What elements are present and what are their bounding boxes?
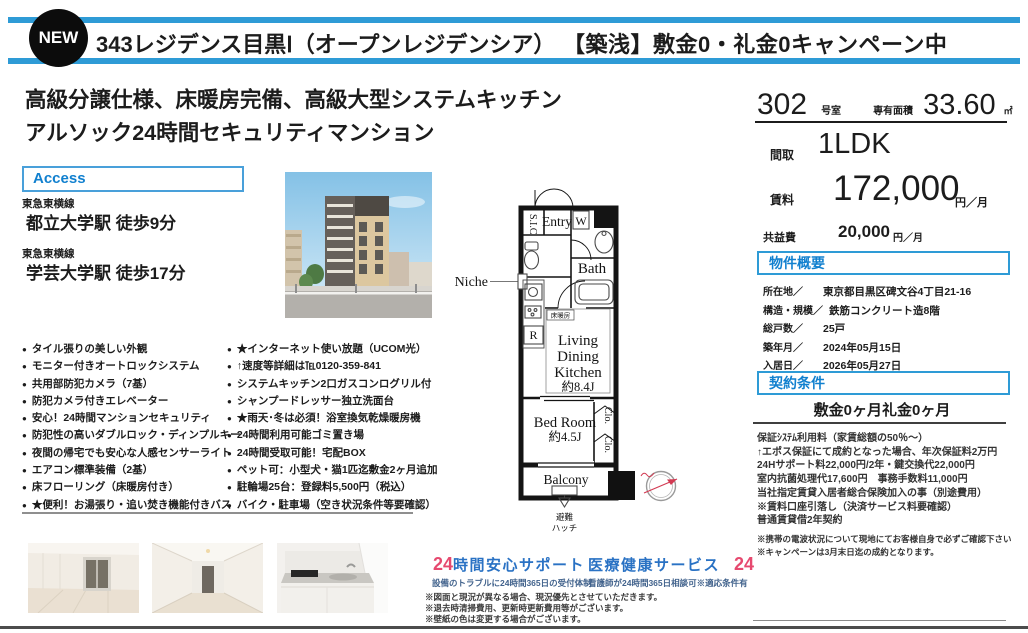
ldk-label-3: Kitchen — [554, 365, 602, 381]
bullet-icon: ● — [22, 445, 27, 462]
list-item: ●システムキッチン2口ガスコンログリル付 — [227, 376, 438, 393]
room-photo-graphic — [152, 543, 263, 613]
deposit-terms: 敷金0ヶ月礼金0ヶ月 — [757, 399, 1007, 420]
floorplan-ps-shaft — [608, 471, 635, 500]
feature-text: タイル張りの美しい外観 — [32, 341, 148, 358]
property-flyer: NEW 343レジデンス目黒Ⅰ（オープンレジデンシア） 【築浅】敷金0・礼金0キ… — [0, 0, 1028, 633]
left-divider-line — [22, 512, 413, 514]
common-fee-unit: 円／月 — [893, 229, 923, 244]
contract-rule — [753, 422, 1006, 424]
list-item: ●防犯性の高いダブルロック・ディンプルキー — [22, 427, 241, 444]
feature-text: 床フローリング（床暖房付き） — [32, 479, 179, 496]
niche-label: Niche — [455, 275, 488, 290]
bullet-icon: ● — [22, 462, 27, 479]
ldk-label-1: Living — [558, 333, 598, 349]
overview-label: 所在地／ — [763, 283, 817, 298]
catch-copy: 高級分譲仕様、床暖房完備、高級大型システムキッチン アルソック24時間セキュリテ… — [25, 84, 562, 150]
overview-label: 築年月／ — [763, 339, 817, 354]
list-item: ●シャンプードレッサー独立洗面台 — [227, 393, 438, 410]
overview-heading: 物件概要 — [757, 251, 1010, 275]
medical-24-number: 24 — [734, 554, 754, 574]
area-unit: ㎡ — [1004, 104, 1013, 117]
contract-note-line: 当社指定賃貸入居者総合保険加入の事（別途費用） — [757, 487, 997, 501]
list-item: ●床フローリング（床暖房付き） — [22, 479, 241, 496]
right-divider-line — [753, 620, 1006, 621]
list-item: ●モニター付きオートロックシステム — [22, 358, 241, 375]
hatch-label-1: 避難 — [556, 512, 574, 522]
footnote-line: ※退去時清掃費用、更新時更新費用等がございます。 — [425, 603, 662, 614]
contract-notes-extra: ※携帯の電波状況について現地にてお客様自身で必ずご確認下さい ※キャンペーンは3… — [757, 533, 1012, 559]
unit-summary-row: 302 号室 専有面積 33.60 ㎡ — [757, 88, 1009, 122]
catch-copy-line1: 高級分譲仕様、床暖房完備、高級大型システムキッチン — [25, 84, 562, 117]
catch-copy-line2: アルソック24時間セキュリティマンション — [25, 117, 562, 150]
footnotes: ※図面と現況が異なる場合、現況優先とさせていただきます。 ※退去時清掃費用、更新… — [425, 592, 662, 624]
refrigerator-label: R — [529, 328, 537, 342]
feature-text: ペット可：小型犬・猫1匹迄敷金2ヶ月追加 — [237, 462, 438, 479]
overview-value: 東京都目黒区碑文谷4丁目21-16 — [823, 284, 971, 299]
closet-label-2: Clo. — [602, 436, 613, 453]
overview-row: 築年月／2024年05月15日 — [763, 339, 1010, 355]
room-number: 302 — [757, 88, 807, 122]
overview-value: 鉄筋コンクリート造8階 — [829, 303, 940, 318]
layout-label: 間取 — [770, 146, 794, 163]
hatch-label-2: ハッチ — [552, 523, 578, 533]
bullet-icon: ● — [227, 462, 232, 479]
rent-value: 172,000 — [833, 169, 960, 209]
floorplan-corner-shaft — [594, 208, 616, 228]
feature-text: ★インターネット使い放題（UCOM光） — [237, 341, 427, 358]
bath-label: Bath — [578, 261, 607, 277]
compass-icon — [641, 472, 677, 501]
entry-label: Entry — [542, 214, 572, 229]
contract-heading: 契約条件 — [757, 371, 1010, 395]
rent-label: 賃料 — [770, 191, 794, 208]
feature-text: モニター付きオートロックシステム — [32, 358, 200, 375]
overview-row: 構造・規模／鉄筋コンクリート造8階 — [763, 302, 1010, 318]
bullet-icon: ● — [22, 376, 27, 393]
bottom-rule — [0, 626, 1028, 629]
list-item: ●ペット可：小型犬・猫1匹迄敷金2ヶ月追加 — [227, 462, 438, 479]
feature-text: 防犯カメラ付きエレベーター — [32, 393, 169, 410]
building-photo-graphic — [285, 172, 432, 318]
support-service-title: 24時間安心サポート — [433, 554, 585, 575]
overview-label: 構造・規模／ — [763, 302, 823, 317]
list-item: ●24時間利用可能ゴミ置き場 — [227, 427, 438, 444]
bullet-icon: ● — [22, 358, 27, 375]
contract-note-line: ※キャンペーンは3月末日迄の成約となります。 — [757, 546, 1012, 559]
layout-value: 1LDK — [818, 128, 891, 161]
list-item: ●★雨天･冬は必須！浴室換気乾燥暖房機 — [227, 410, 438, 427]
feature-text: 防犯性の高いダブルロック・ディンプルキー — [32, 427, 241, 444]
overview-label: 総戸数／ — [763, 320, 817, 335]
footnote-line: ※壁紙の色は変更する場合がございます。 — [425, 614, 662, 625]
list-item: ●24時間受取可能！宅配BOX — [227, 445, 438, 462]
bullet-icon: ● — [22, 393, 27, 410]
station-1: 都立大学駅 徒歩9分 — [26, 209, 176, 234]
list-item: ●エアコン標準装備（2基） — [22, 462, 241, 479]
ldk-size-label: 約8.4J — [562, 379, 595, 394]
medical-service-subtitle: 看護師が24時間365日相談可※適応条件有 — [588, 577, 748, 589]
area-label: 専有面積 — [873, 102, 913, 117]
bullet-icon: ● — [227, 358, 232, 375]
area-value: 33.60 — [923, 89, 996, 122]
bedroom-label: Bed Room — [534, 415, 597, 431]
feature-text: システムキッチン2口ガスコンログリル付 — [237, 376, 432, 393]
room-photo-hall — [152, 543, 263, 613]
floor-plan: S.I.C Entry W Bath Niche Living Dining K… — [440, 180, 695, 555]
bullet-icon: ● — [227, 341, 232, 358]
floor-heating-label: 床暖房 — [551, 311, 571, 320]
header-stripe-top — [8, 17, 1020, 23]
bedroom-size-label: 約4.5J — [549, 429, 582, 444]
bullet-icon: ● — [227, 427, 232, 444]
medical-title-text: 医療健康サービス — [588, 557, 720, 574]
room-photo-living — [28, 543, 139, 613]
list-item: ●タイル張りの美しい外観 — [22, 341, 241, 358]
balcony-label: Balcony — [544, 472, 589, 487]
feature-text: 夜間の帰宅でも安心な人感センサーライト — [32, 445, 232, 462]
feature-text: ★雨天･冬は必須！浴室換気乾燥暖房機 — [237, 410, 421, 427]
support-24-number: 24 — [433, 554, 453, 574]
rent-unit: 円／月 — [955, 194, 988, 210]
feature-text: 24時間利用可能ゴミ置き場 — [237, 427, 364, 444]
contract-notes: 保証ｼｽﾃﾑ利用料（家賃総額の50％～） ↑エポス保証にて成約となった場合、年次… — [757, 432, 997, 528]
sic-label: S.I.C — [527, 214, 538, 235]
list-item: ●↑速度等詳細は℡0120-359-841 — [227, 358, 438, 375]
common-fee-value: 20,000 — [838, 222, 890, 242]
washer-label: W — [575, 214, 587, 228]
campaign-banner: 【築浅】敷金0・礼金0キャンペーン中 — [563, 27, 947, 59]
bullet-icon: ● — [22, 479, 27, 496]
kitchen-photo-graphic — [277, 543, 388, 613]
footnote-line: ※図面と現況が異なる場合、現況優先とさせていただきます。 — [425, 592, 662, 603]
building-title: 343レジデンス目黒Ⅰ（オープンレジデンシア） — [96, 27, 555, 59]
bullet-icon: ● — [227, 479, 232, 496]
list-item: ●駐輪場25台：登録料5,500円（税込） — [227, 479, 438, 496]
station-2: 学芸大学駅 徒歩17分 — [26, 259, 186, 284]
floorplan-labels: S.I.C Entry W Bath Niche Living Dining K… — [455, 214, 613, 487]
overview-row: 所在地／東京都目黒区碑文谷4丁目21-16 — [763, 283, 1010, 299]
closet-label-1: Clo. — [602, 407, 613, 424]
feature-list-left: ●タイル張りの美しい外観 ●モニター付きオートロックシステム ●共用部防犯カメラ… — [22, 341, 241, 514]
floor-plan-drawing: S.I.C Entry W Bath Niche Living Dining K… — [440, 180, 695, 555]
medical-service-title: 医療健康サービス24 — [588, 554, 754, 575]
feature-list-right: ●★インターネット使い放題（UCOM光） ●↑速度等詳細は℡0120-359-8… — [227, 341, 438, 514]
contract-note-line: 保証ｼｽﾃﾑ利用料（家賃総額の50％～） — [757, 432, 997, 446]
overview-row: 総戸数／25戸 — [763, 320, 1010, 336]
access-heading: Access — [22, 166, 244, 192]
list-item: ●安心！24時間マンションセキュリティ — [22, 410, 241, 427]
support-title-text: 時間安心サポート — [453, 557, 585, 574]
list-item: ●夜間の帰宅でも安心な人感センサーライト — [22, 445, 241, 462]
contract-note-line: ↑エポス保証にて成約となった場合、年次保証料2万円 — [757, 446, 997, 460]
ldk-label-2: Dining — [557, 349, 599, 365]
bullet-icon: ● — [227, 410, 232, 427]
contract-note-line: 室内抗菌処理代17,600円 事務手数料11,000円 — [757, 473, 997, 487]
feature-text: 安心！24時間マンションセキュリティ — [32, 410, 211, 427]
contract-note-line: 普通賃貸借2年契約 — [757, 514, 997, 528]
list-item: ●防犯カメラ付きエレベーター — [22, 393, 241, 410]
bullet-icon: ● — [227, 445, 232, 462]
overview-label: 入居日／ — [763, 357, 817, 372]
feature-text: 駐輪場25台：登録料5,500円（税込） — [237, 479, 411, 496]
bullet-icon: ● — [227, 376, 232, 393]
feature-text: ↑速度等詳細は℡0120-359-841 — [237, 358, 381, 375]
contract-note-line: ※携帯の電波状況について現地にてお客様自身で必ずご確認下さい — [757, 533, 1012, 546]
list-item: ●★インターネット使い放題（UCOM光） — [227, 341, 438, 358]
overview-value: 2024年05月15日 — [823, 340, 901, 355]
feature-text: 24時間受取可能！宅配BOX — [237, 445, 366, 462]
bullet-icon: ● — [227, 393, 232, 410]
feature-text: 共用部防犯カメラ（7基） — [32, 376, 153, 393]
overview-value: 25戸 — [823, 321, 845, 336]
unit-summary-rule — [755, 121, 1007, 123]
building-photo — [285, 172, 432, 318]
bullet-icon: ● — [22, 410, 27, 427]
new-badge: NEW — [29, 9, 88, 67]
kitchen-photo — [277, 543, 388, 613]
list-item: ●共用部防犯カメラ（7基） — [22, 376, 241, 393]
contract-note-line: ※賃料口座引落し（決済サービス料要確認） — [757, 501, 997, 515]
feature-text: エアコン標準装備（2基） — [32, 462, 153, 479]
room-photo-graphic — [28, 543, 139, 613]
feature-text: シャンプードレッサー独立洗面台 — [237, 393, 394, 410]
bullet-icon: ● — [22, 427, 27, 444]
support-service-subtitle: 設備のトラブルに24時間365日の受付体制 — [432, 577, 592, 589]
contract-note-line: 24Hサポート料22,000円/2年・鍵交換代22,000円 — [757, 459, 997, 473]
room-number-label: 号室 — [821, 102, 841, 117]
common-fee-label: 共益費 — [763, 229, 796, 245]
bullet-icon: ● — [22, 341, 27, 358]
